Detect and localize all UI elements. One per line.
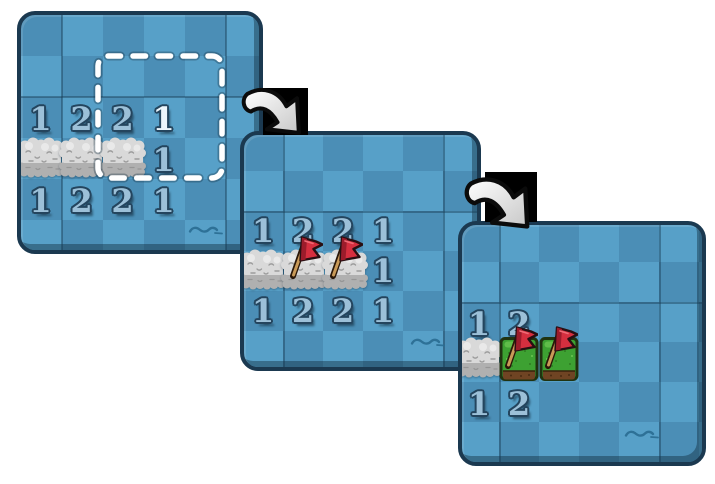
grid-line — [659, 225, 661, 462]
water-ripple-icon — [188, 224, 224, 236]
number-cell[interactable]: 2 — [102, 179, 143, 220]
fog-tile[interactable] — [240, 247, 286, 293]
number-cell[interactable]: 1 — [363, 249, 403, 290]
number-cell[interactable]: 1 — [363, 209, 403, 250]
board-step-1: 1 2 2 1 1 1 2 2 1 — [17, 11, 263, 254]
number-cell[interactable]: 1 — [459, 382, 499, 423]
flag-icon — [498, 325, 538, 369]
number-cell[interactable]: 1 — [243, 209, 283, 250]
tutorial-figure: { "figure": { "type": "minesweeper-tutor… — [0, 0, 715, 484]
water-ripple-icon — [410, 336, 446, 348]
number-cell[interactable]: 1 — [20, 97, 61, 138]
fog-tile[interactable] — [458, 335, 502, 381]
board-step-2: 1 2 2 1 1 1 2 2 1 — [240, 131, 481, 371]
number-cell[interactable]: 1 — [363, 289, 403, 330]
number-cell[interactable]: 1 — [20, 179, 61, 220]
water-ripple-icon — [624, 428, 660, 440]
flag-icon — [323, 235, 363, 279]
flag-icon — [538, 325, 578, 369]
board-step-3: 1 2 1 2 — [458, 221, 706, 466]
number-cell[interactable]: 2 — [323, 289, 363, 330]
next-step-arrow-icon — [234, 82, 318, 146]
number-cell[interactable]: 2 — [499, 382, 539, 423]
fog-tile[interactable] — [18, 135, 64, 181]
number-cell[interactable]: 1 — [143, 179, 184, 220]
number-cell[interactable]: 2 — [61, 179, 102, 220]
highlight-selection-box-icon — [92, 50, 228, 184]
flag-icon — [283, 235, 323, 279]
number-cell[interactable]: 1 — [243, 289, 283, 330]
next-step-arrow-icon — [456, 164, 546, 242]
grid-line — [443, 135, 445, 367]
number-cell[interactable]: 2 — [283, 289, 323, 330]
